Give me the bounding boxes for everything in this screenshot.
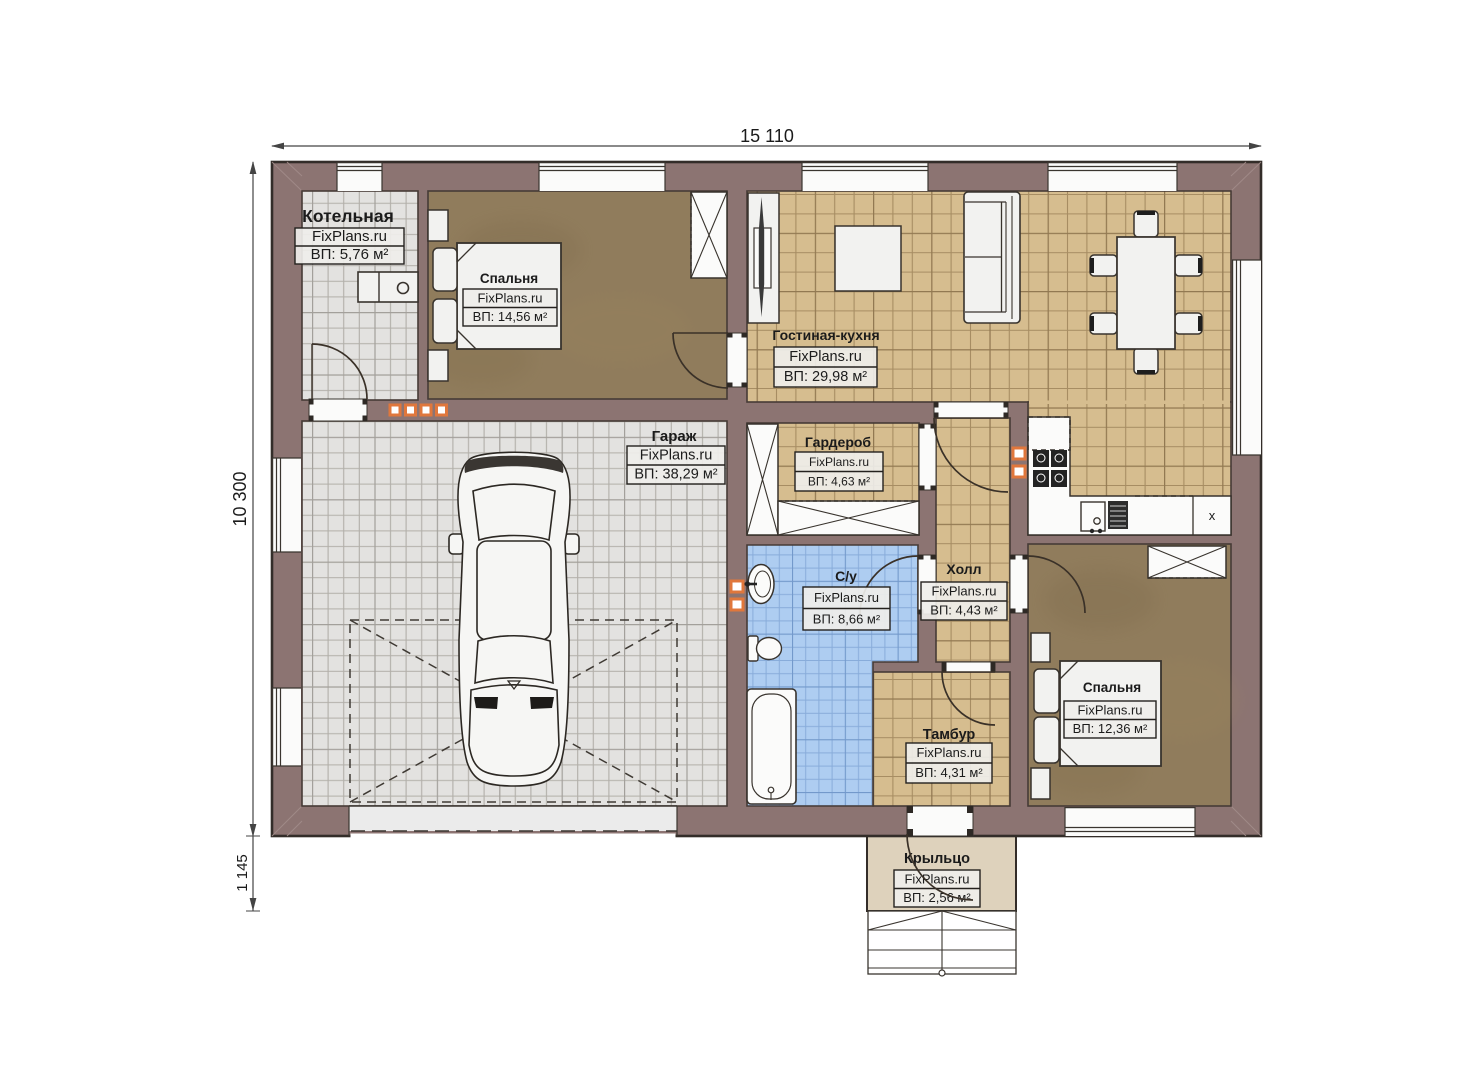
svg-text:ВП: 12,36 м²: ВП: 12,36 м² xyxy=(1073,721,1148,736)
svg-text:ВП: 4,63 м²: ВП: 4,63 м² xyxy=(808,474,870,488)
svg-text:FixPlans.ru: FixPlans.ru xyxy=(814,590,879,605)
svg-text:Гостиная-кухня: Гостиная-кухня xyxy=(772,327,879,343)
svg-text:Тамбур: Тамбур xyxy=(923,727,976,743)
svg-text:FixPlans.ru: FixPlans.ru xyxy=(312,228,387,245)
svg-text:Гараж: Гараж xyxy=(652,428,697,445)
svg-text:Гардероб: Гардероб xyxy=(805,434,872,450)
svg-text:Холл: Холл xyxy=(946,561,981,577)
svg-text:ВП: 4,31 м²: ВП: 4,31 м² xyxy=(915,765,983,780)
svg-text:FixPlans.ru: FixPlans.ru xyxy=(809,455,869,469)
svg-text:15 110: 15 110 xyxy=(740,126,794,146)
svg-text:1 145: 1 145 xyxy=(234,854,251,892)
svg-text:ВП: 14,56 м²: ВП: 14,56 м² xyxy=(473,309,548,324)
svg-text:FixPlans.ru: FixPlans.ru xyxy=(931,584,996,599)
svg-text:Спальня: Спальня xyxy=(1083,680,1141,695)
svg-text:ВП: 29,98 м²: ВП: 29,98 м² xyxy=(784,369,867,385)
svg-text:ВП: 4,43 м²: ВП: 4,43 м² xyxy=(930,603,998,618)
svg-text:ВП: 38,29 м²: ВП: 38,29 м² xyxy=(634,467,717,483)
svg-text:ВП: 2,56 м²: ВП: 2,56 м² xyxy=(903,890,971,905)
svg-text:FixPlans.ru: FixPlans.ru xyxy=(640,448,713,464)
svg-text:FixPlans.ru: FixPlans.ru xyxy=(477,290,542,305)
svg-text:x: x xyxy=(1209,508,1216,523)
svg-text:ВП: 5,76 м²: ВП: 5,76 м² xyxy=(311,246,389,263)
svg-text:10 300: 10 300 xyxy=(230,471,250,526)
svg-text:FixPlans.ru: FixPlans.ru xyxy=(916,745,981,760)
svg-text:FixPlans.ru: FixPlans.ru xyxy=(904,871,969,886)
svg-text:С/у: С/у xyxy=(835,568,857,584)
svg-text:FixPlans.ru: FixPlans.ru xyxy=(1077,702,1142,717)
svg-text:FixPlans.ru: FixPlans.ru xyxy=(789,349,862,365)
svg-text:Спальня: Спальня xyxy=(480,271,538,286)
svg-text:ВП: 8,66 м²: ВП: 8,66 м² xyxy=(813,611,881,626)
svg-text:Котельная: Котельная xyxy=(302,206,394,226)
